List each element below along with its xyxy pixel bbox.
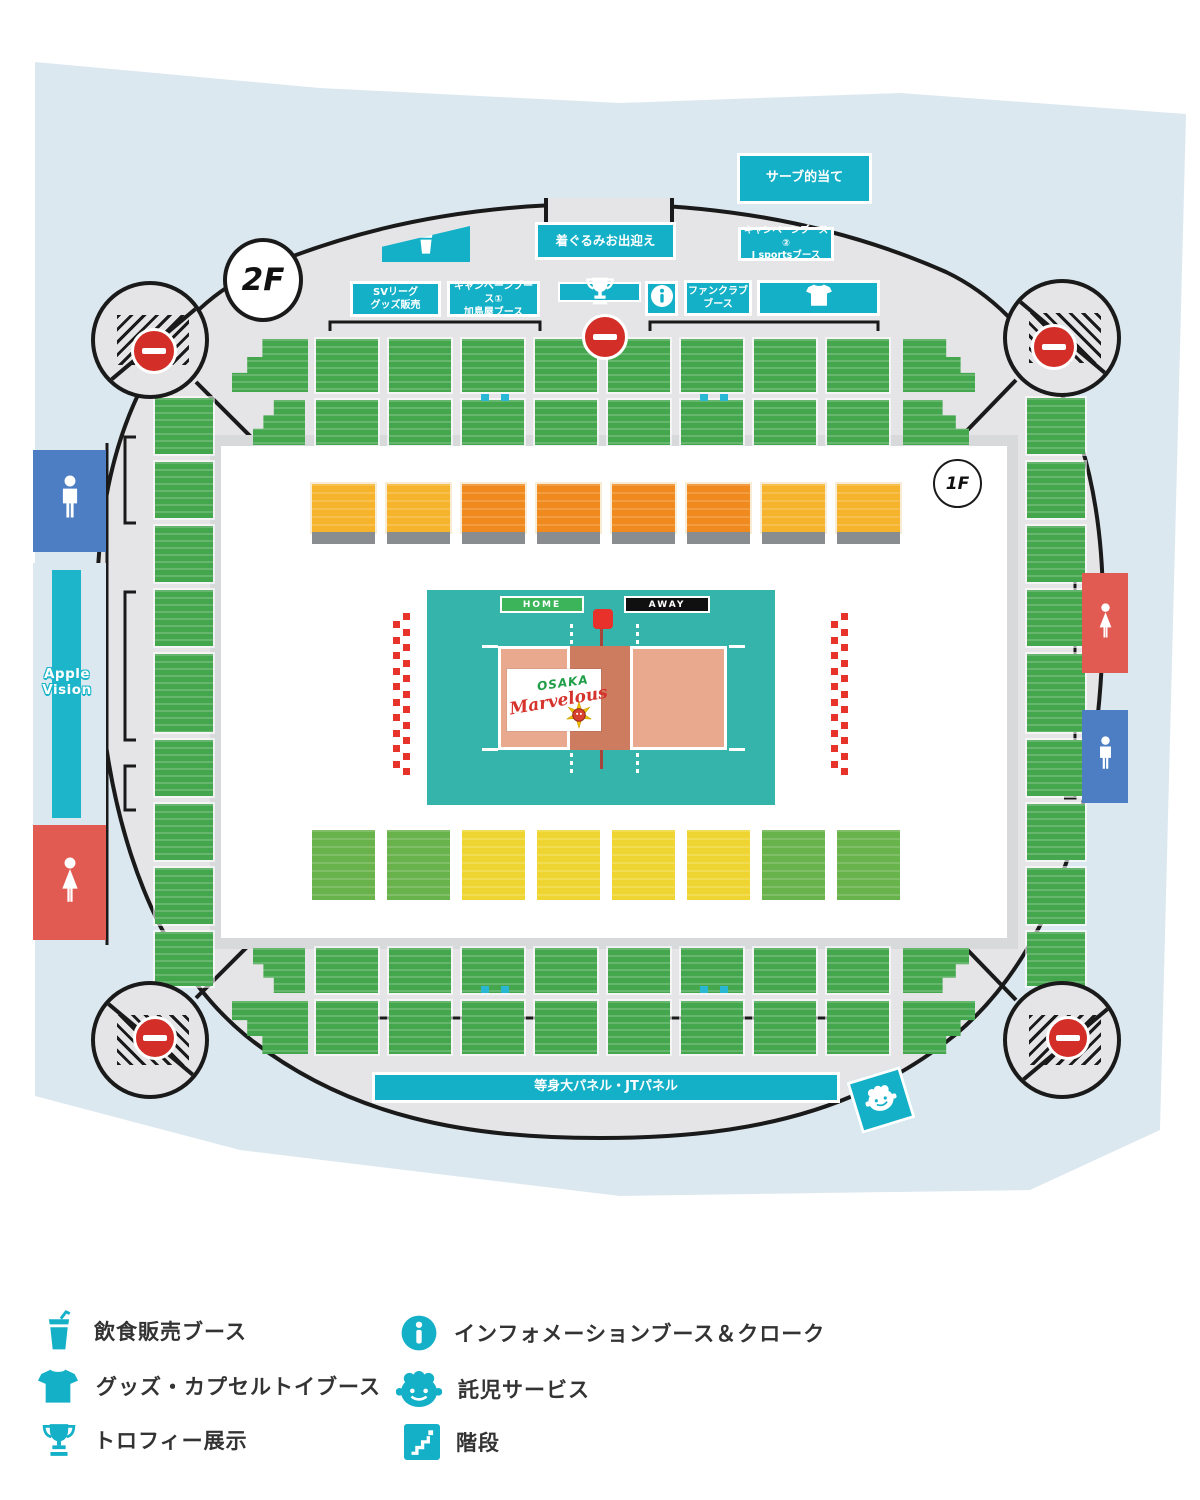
booth-label: J sportsブース <box>752 250 821 262</box>
seating-block <box>155 462 213 518</box>
seating-block <box>389 339 451 392</box>
seating-block <box>462 339 524 392</box>
booth-sv-league-goods: SVリーグ グッズ販売 <box>350 281 441 317</box>
wheelchair-spot <box>481 394 489 401</box>
booth-fan-club: ファンクラブ ブース <box>684 280 752 316</box>
seating-block <box>1027 654 1085 732</box>
cheer-seat-dot <box>841 644 848 651</box>
seating-block <box>681 1001 743 1054</box>
cheer-seat-dot <box>841 613 848 620</box>
booth-campaign-2: キャンペーンブース② J sportsブース <box>738 227 834 261</box>
seating-block <box>387 830 450 900</box>
floor-1f-badge: 1F <box>933 459 982 508</box>
booth-label: ファンクラブ <box>688 285 748 298</box>
cheer-seat-dot <box>841 737 848 744</box>
seating-block <box>155 526 213 582</box>
seating-block <box>687 830 750 900</box>
cheer-seat-dot <box>393 745 400 752</box>
seating-block <box>608 948 670 993</box>
cheer-seat-dot <box>841 660 848 667</box>
cheer-seat-dot <box>831 621 838 628</box>
booth-label: 等身大パネル・JTパネル <box>534 1079 678 1096</box>
sideline-tick <box>729 748 745 751</box>
cheer-seat-dot <box>841 768 848 775</box>
seating-block <box>612 830 675 900</box>
booth-label: キャンペーンブース② <box>741 225 831 250</box>
seating-block <box>155 932 213 986</box>
seating-block <box>537 830 600 900</box>
seating-block <box>681 948 743 993</box>
seating-block <box>754 339 816 392</box>
seating-block <box>155 804 213 860</box>
cheer-seat-dot <box>393 652 400 659</box>
attack-line-extension <box>570 753 573 775</box>
wheelchair-spot <box>720 986 728 993</box>
cheer-seat-dot <box>393 621 400 628</box>
home-bench-banner: HOME <box>500 596 584 613</box>
booth-goods-capsule-toy <box>757 280 880 316</box>
male-toilet-icon <box>59 475 81 527</box>
wheelchair-spot <box>700 394 708 401</box>
attack-line-extension <box>636 624 639 646</box>
cheer-seat-dot <box>393 668 400 675</box>
seating-block <box>827 400 889 445</box>
booth-label: SVリーグ <box>373 286 418 299</box>
seating-block <box>462 830 525 900</box>
cheer-seat-dot <box>403 613 410 620</box>
male-toilet-icon <box>1097 736 1114 777</box>
seating-block <box>155 654 213 732</box>
seating-block <box>155 868 213 924</box>
booth-campaign-1: キャンペーンブース① 加島屋ブース <box>447 281 540 317</box>
cheer-seat-dot <box>831 668 838 675</box>
seating-block <box>387 484 450 532</box>
seat-row-walkway <box>462 532 525 544</box>
no-entry-icon <box>131 328 177 374</box>
seating-block <box>754 400 816 445</box>
sideline-tick <box>482 645 498 648</box>
cheer-seat-dot <box>403 675 410 682</box>
seating-block <box>827 1001 889 1054</box>
seating-block <box>462 948 524 993</box>
no-entry-icon <box>1046 1016 1090 1060</box>
seating-block <box>1027 740 1085 796</box>
seat-row-walkway <box>612 532 675 544</box>
seating-block <box>312 830 375 900</box>
seating-block <box>316 339 378 392</box>
cheer-seat-dot <box>393 761 400 768</box>
booth-life-size-panel: 等身大パネル・JTパネル <box>372 1072 840 1103</box>
seating-block <box>762 830 825 900</box>
booth-label: 着ぐるみお出迎え <box>556 233 656 249</box>
seat-row-walkway <box>762 532 825 544</box>
wheelchair-spot <box>700 986 708 993</box>
female-toilet-icon <box>1097 603 1114 644</box>
attack-line-extension <box>570 624 573 646</box>
mascot-icon <box>565 701 593 733</box>
seating-block <box>1027 868 1085 924</box>
seating-block <box>827 339 889 392</box>
cheer-seat-dot <box>393 714 400 721</box>
seating-block <box>1027 526 1085 582</box>
team-logo: OSAKA Marvelous <box>507 669 601 731</box>
seating-block <box>155 740 213 796</box>
cheer-seat-dot <box>841 691 848 698</box>
info-icon <box>650 284 674 314</box>
cheer-seat-dot <box>831 730 838 737</box>
female-toilet <box>33 825 106 940</box>
seating-block <box>312 484 375 532</box>
wheelchair-spot <box>481 986 489 993</box>
sideline-tick <box>482 748 498 751</box>
seating-block <box>762 484 825 532</box>
male-toilet <box>1082 710 1128 803</box>
seating-block <box>537 484 600 532</box>
seating-block <box>608 1001 670 1054</box>
away-bench-banner: AWAY <box>624 596 710 613</box>
seating-block <box>389 948 451 993</box>
booth-label: 加島屋ブース <box>464 306 524 319</box>
booth-label: グッズ販売 <box>371 299 421 312</box>
seating-block <box>389 400 451 445</box>
seating-block <box>681 400 743 445</box>
seating-block <box>389 1001 451 1054</box>
cheer-seat-dot <box>831 699 838 706</box>
seating-block <box>535 400 597 445</box>
booth-label: サーブ的当て <box>766 170 843 187</box>
seat-row-walkway <box>837 532 900 544</box>
booth-label: ブース <box>703 298 733 311</box>
male-toilet <box>33 450 106 552</box>
female-toilet-icon <box>59 857 81 909</box>
no-entry-icon <box>1031 324 1077 370</box>
cheer-seat-dot <box>841 706 848 713</box>
seating-block <box>1027 932 1085 986</box>
seating-block <box>837 484 900 532</box>
seating-block <box>462 484 525 532</box>
cheer-seat-dot <box>831 637 838 644</box>
wheelchair-spot <box>720 394 728 401</box>
cheer-seat-dot <box>403 737 410 744</box>
sideline-tick <box>729 645 745 648</box>
cheer-seat-dot <box>841 722 848 729</box>
cheer-seat-dot <box>831 714 838 721</box>
seating-block <box>1027 804 1085 860</box>
apple-vision-label: Apple Vision <box>25 667 109 698</box>
attack-line-extension <box>636 753 639 775</box>
wheelchair-spot <box>501 394 509 401</box>
seating-block <box>155 398 213 454</box>
referee-stand <box>593 609 613 629</box>
cheer-seat-dot <box>393 699 400 706</box>
seat-row-walkway <box>387 532 450 544</box>
seating-block <box>155 590 213 646</box>
seating-block <box>754 1001 816 1054</box>
cheer-seat-dot <box>403 753 410 760</box>
female-toilet <box>1082 573 1128 673</box>
cheer-seat-dot <box>831 652 838 659</box>
cheer-seat-dot <box>403 691 410 698</box>
cheer-seat-dot <box>831 761 838 768</box>
booth-label: キャンペーンブース① <box>450 280 537 306</box>
wheelchair-spot <box>501 986 509 993</box>
seating-block <box>1027 590 1085 646</box>
cheer-seat-dot <box>403 768 410 775</box>
booth-serve-target: サーブ的当て <box>737 153 872 204</box>
floor-2f-badge: 2F <box>223 238 303 322</box>
seating-block <box>535 1001 597 1054</box>
cheer-seat-dot <box>841 629 848 636</box>
cheer-seat-dot <box>403 629 410 636</box>
cheer-seat-dot <box>403 722 410 729</box>
no-entry-icon <box>133 1016 177 1060</box>
childcare-icon <box>861 1080 901 1120</box>
seating-block <box>1027 462 1085 518</box>
seating-block <box>316 948 378 993</box>
seat-row-walkway <box>687 532 750 544</box>
seating-block <box>827 948 889 993</box>
seating-block <box>462 400 524 445</box>
seating-block <box>608 400 670 445</box>
seating-block <box>316 400 378 445</box>
cheer-seat-dot <box>403 660 410 667</box>
seating-block <box>316 1001 378 1054</box>
apple-vision-board: Apple Vision <box>33 563 106 825</box>
seating-block <box>681 339 743 392</box>
cheer-seat-dot <box>831 683 838 690</box>
no-entry-icon <box>582 314 628 360</box>
seating-block <box>535 948 597 993</box>
tshirt-icon <box>805 282 833 314</box>
trophy-icon <box>584 274 616 312</box>
seating-block <box>837 830 900 900</box>
cheer-seat-dot <box>403 644 410 651</box>
cheer-seat-dot <box>841 753 848 760</box>
booth-information <box>645 281 678 316</box>
seating-block <box>754 948 816 993</box>
cheer-seat-dot <box>841 675 848 682</box>
cheer-seat-dot <box>403 706 410 713</box>
arena-floor-map: HOME AWAY OSAKA Marvelous サーブ的当て 着ぐるみお出迎… <box>0 0 1200 1500</box>
booth-mascot-greeting: 着ぐるみお出迎え <box>535 222 676 260</box>
seating-block <box>462 1001 524 1054</box>
cheer-seat-dot <box>393 637 400 644</box>
seating-block <box>687 484 750 532</box>
seat-row-walkway <box>537 532 600 544</box>
seating-block <box>612 484 675 532</box>
cheer-seat-dot <box>831 745 838 752</box>
seat-row-walkway <box>312 532 375 544</box>
cheer-seat-dot <box>393 683 400 690</box>
cheer-seat-dot <box>393 730 400 737</box>
seating-block <box>1027 398 1085 454</box>
